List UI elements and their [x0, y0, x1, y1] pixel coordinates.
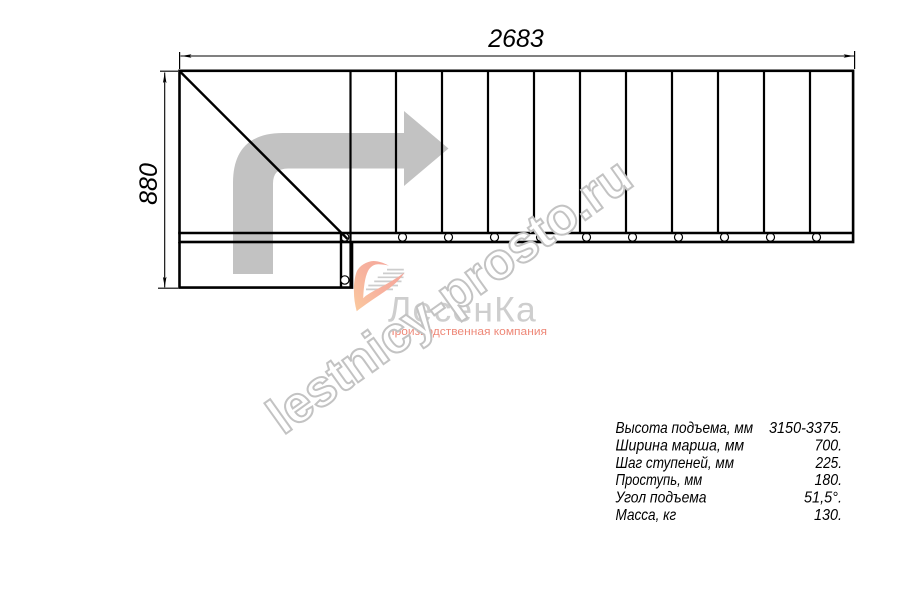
svg-text:Ширина марша, мм: Ширина марша, мм: [616, 437, 745, 454]
svg-text:51,5°.: 51,5°.: [804, 490, 842, 507]
svg-text:lestnicy-prosto.ru: lestnicy-prosto.ru: [256, 146, 642, 445]
svg-text:130.: 130.: [814, 507, 842, 524]
svg-text:Угол подъема: Угол подъема: [615, 490, 707, 507]
svg-text:180.: 180.: [815, 472, 843, 489]
svg-text:Высота подъема, мм: Высота подъема, мм: [616, 420, 754, 437]
svg-text:3150-3375.: 3150-3375.: [769, 420, 842, 437]
svg-text:225.: 225.: [815, 455, 842, 472]
svg-text:880: 880: [135, 163, 163, 205]
svg-text:Масса, кг: Масса, кг: [616, 507, 677, 524]
svg-text:Проступь, мм: Проступь, мм: [616, 472, 703, 489]
svg-text:2683: 2683: [487, 25, 544, 53]
svg-text:700.: 700.: [815, 437, 843, 454]
svg-text:Шаг ступеней, мм: Шаг ступеней, мм: [616, 455, 735, 472]
